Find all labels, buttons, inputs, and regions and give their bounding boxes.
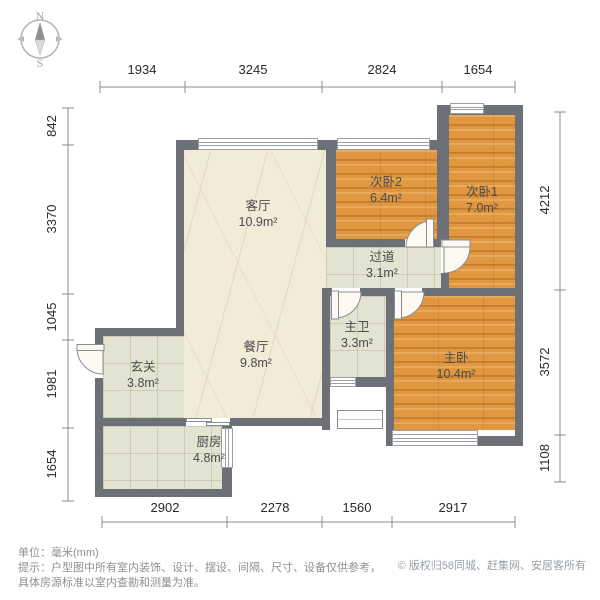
room-label-master-bedroom: 主卧 10.4m² (416, 350, 496, 382)
room-area: 9.8m² (216, 355, 296, 371)
wall (474, 436, 523, 446)
dim-label-bottom-3: 1560 (325, 501, 389, 515)
compass-south-label: S (37, 56, 44, 70)
room-label-living: 客厅 10.9m² (218, 198, 298, 230)
compass-north-label: N (36, 9, 45, 23)
room-name: 次卧2 (346, 174, 426, 190)
dim-label-left-5: 1654 (45, 432, 59, 496)
room-name: 过道 (342, 249, 422, 265)
window-living (198, 138, 318, 150)
footer-unit: 单位：毫米(mm) (18, 546, 99, 560)
dim-label-top-1: 1934 (110, 63, 174, 77)
wall (326, 140, 336, 247)
dim-label-right-1: 4212 (538, 168, 552, 232)
room-area: 7.0m² (442, 200, 522, 216)
door-opening-master (395, 288, 422, 296)
room-area: 10.4m² (416, 366, 496, 382)
dim-label-right-3: 1108 (538, 426, 552, 490)
room-name: 客厅 (218, 198, 298, 214)
dim-label-bottom-1: 2902 (133, 501, 197, 515)
dim-label-top-4: 1654 (446, 63, 510, 77)
room-label-bedroom1: 次卧1 7.0m² (442, 184, 522, 216)
wall (437, 105, 449, 240)
window-bedroom1 (450, 103, 484, 114)
door-opening-bedroom1 (441, 240, 449, 273)
footer-tip-2: 具体房源标准以室内查勘和测量为准。 (18, 576, 205, 590)
wall (322, 288, 330, 430)
dim-label-right-2: 3572 (538, 330, 552, 394)
window-master-bath (330, 377, 356, 387)
dim-label-left-2: 3370 (45, 187, 59, 251)
kitchen-sliding-door (206, 422, 230, 426)
dim-label-bottom-2: 2278 (243, 501, 307, 515)
room-name: 厨房 (169, 434, 249, 450)
dim-label-top-3: 2824 (350, 63, 414, 77)
room-name: 餐厅 (216, 339, 296, 355)
room-label-dining: 餐厅 9.8m² (216, 339, 296, 371)
room-label-bedroom2: 次卧2 6.4m² (346, 174, 426, 206)
room-area: 4.8m² (169, 450, 249, 466)
room-name: 主卧 (416, 350, 496, 366)
wall (95, 489, 232, 497)
wall (176, 140, 184, 336)
dim-label-left-1: 842 (45, 94, 59, 158)
room-name: 玄关 (103, 359, 183, 375)
room-area: 3.3m² (317, 335, 397, 351)
dim-label-left-4: 1981 (45, 352, 59, 416)
door-opening-bath (332, 288, 360, 296)
wall (515, 105, 523, 446)
dim-label-top-2: 3245 (221, 63, 285, 77)
dim-label-left-3: 1045 (45, 285, 59, 349)
room-area: 6.4m² (346, 190, 426, 206)
wall (386, 288, 394, 446)
wall (95, 328, 184, 336)
room-area: 3.8m² (103, 375, 183, 391)
compass-icon: N S (8, 6, 72, 70)
room-label-master-bath: 主卫 3.3m² (317, 319, 397, 351)
floor-living-dining (184, 148, 326, 418)
door-opening-bedroom2 (405, 239, 434, 247)
room-label-hallway: 过道 3.1m² (342, 249, 422, 281)
room-area: 10.9m² (218, 214, 298, 230)
footer-copyright: © 版权归58同城、赶集网、安居客所有 (398, 557, 586, 573)
ac-unit (337, 410, 383, 429)
room-label-entry: 玄关 3.8m² (103, 359, 183, 391)
room-name: 次卧1 (442, 184, 522, 200)
footer-tip-1: 提示：户型图中所有室内装饰、设计、摆设、间隔、尺寸、设备仅供参考， (18, 561, 381, 575)
floorplan-page: N S 1934 3245 2824 1654 842 3370 1045 19… (0, 0, 600, 600)
window-master-bedroom (392, 430, 478, 446)
room-name: 主卫 (317, 319, 397, 335)
dim-label-bottom-4: 2917 (421, 501, 485, 515)
window-bedroom2 (337, 138, 430, 150)
room-label-kitchen: 厨房 4.8m² (169, 434, 249, 466)
room-area: 3.1m² (342, 265, 422, 281)
door-opening-entry (95, 344, 103, 378)
